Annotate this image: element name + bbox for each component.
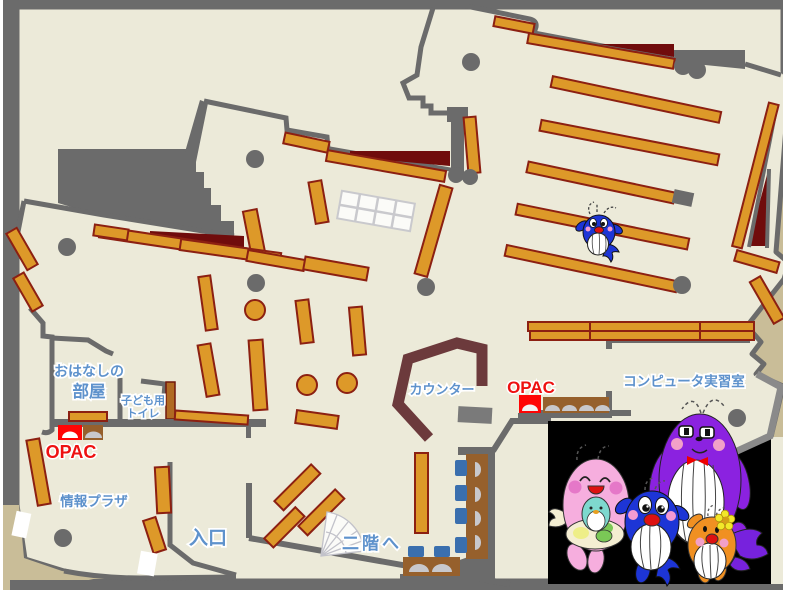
svg-text:二階へ: 二階へ bbox=[342, 534, 402, 553]
svg-text:情報プラザ: 情報プラザ bbox=[60, 493, 128, 509]
svg-text:部屋: 部屋 bbox=[73, 381, 106, 401]
svg-text:子ども用: 子ども用 bbox=[121, 394, 165, 407]
svg-text:カウンター: カウンター bbox=[409, 382, 474, 397]
svg-text:おはなしの: おはなしの bbox=[54, 363, 124, 379]
svg-text:入口: 入口 bbox=[189, 527, 227, 549]
svg-text:OPAC: OPAC bbox=[507, 378, 555, 397]
svg-text:トイレ: トイレ bbox=[127, 407, 160, 420]
svg-text:コンピュータ実習室: コンピュータ実習室 bbox=[623, 373, 745, 389]
svg-text:OPAC: OPAC bbox=[46, 442, 97, 462]
